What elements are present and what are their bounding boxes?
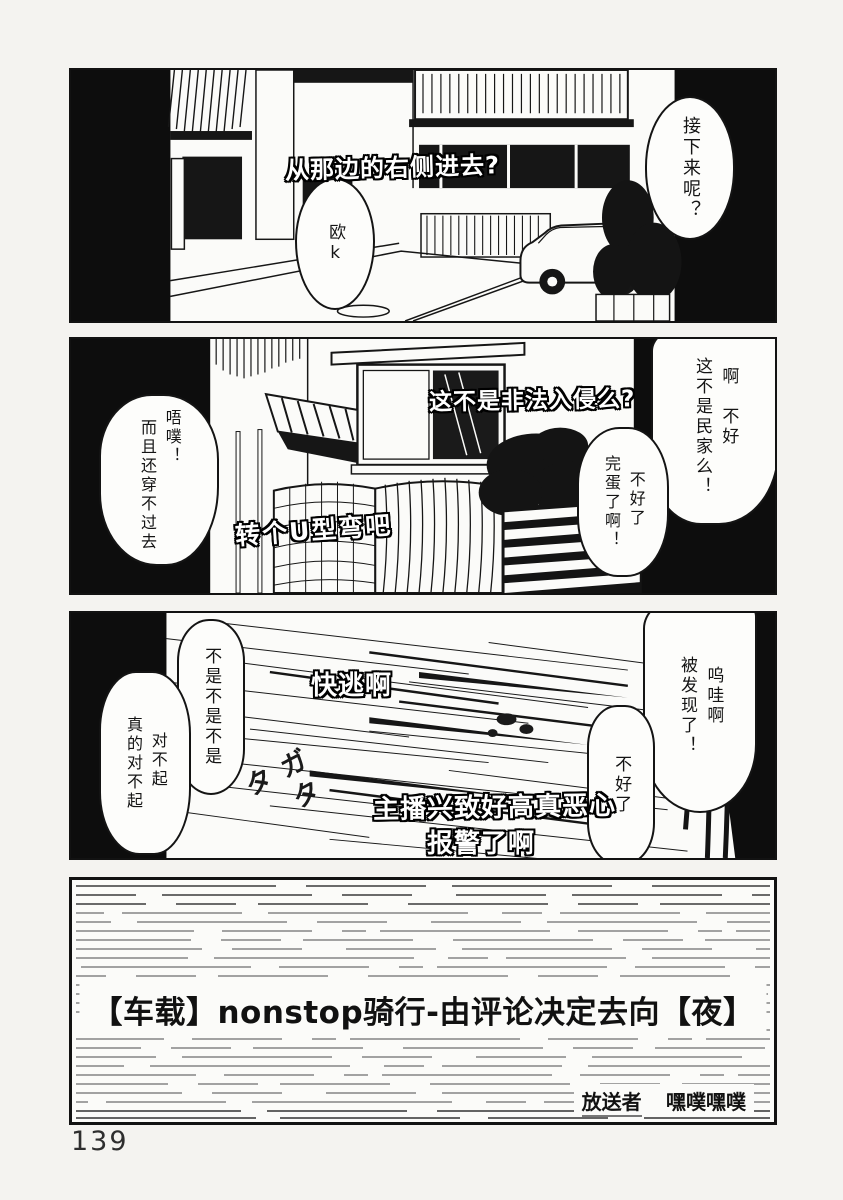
manga-page: 从那边的右侧进去? 欧k 接下来呢？: [0, 0, 843, 1200]
bubble-text: 不好了 完蛋了啊！: [598, 455, 648, 550]
caption-enter-from-right: 从那边的右侧进去?: [285, 145, 501, 186]
broadcaster-name: 嘿噗嘿噗: [666, 1090, 746, 1114]
speech-bubble-sorry: 对不起 真的对不起: [99, 671, 191, 855]
bubble-line: 不是不是不是: [198, 647, 224, 767]
bubble-line: 对不起: [145, 732, 170, 811]
caption-run: 快逃啊: [311, 665, 392, 702]
bubble-text: 接下来呢？: [676, 116, 704, 221]
speech-bubble-ok: 欧k: [295, 178, 375, 310]
broadcaster-credit: 放送者 嘿噗嘿噗: [574, 1084, 754, 1117]
speech-bubble-uh-oh: 不好了: [587, 705, 655, 860]
bubble-line: 而且还穿不过去: [134, 419, 159, 552]
page-number: 139: [71, 1126, 129, 1157]
bubble-text: 欧k: [322, 223, 348, 266]
bubble-text: 对不起 真的对不起: [120, 716, 170, 811]
caption-police-called: 报警了啊: [427, 823, 535, 860]
bubble-line: 啊 不好: [715, 367, 741, 497]
panel-4: 【车载】nonstop骑行-由评论决定去向【夜】 放送者 嘿噗嘿噗: [69, 877, 777, 1125]
bubble-text: 呜哇啊 被发现了！: [674, 656, 727, 756]
caption-streamer-gross: 主播兴致好高真恶心: [373, 785, 617, 826]
panel-3: 快逃啊 主播兴致好高真恶心 报警了啊 ガタタ 不是不是不是 对不起 真的对不起 …: [69, 611, 777, 860]
speech-bubble-private-house: 啊 不好 这不是民家么！: [651, 337, 777, 525]
speech-bubble-whats-next: 接下来呢？: [645, 96, 735, 240]
bubble-line: 被发现了！: [674, 656, 700, 756]
bubble-line: 呜哇啊: [700, 666, 726, 756]
bubble-text: 啊 不好 这不是民家么！: [689, 357, 742, 497]
bubble-text: 唔噗！ 而且还穿不过去: [134, 409, 184, 552]
bubble-text: 不是不是不是: [198, 647, 224, 767]
bubble-line: 欧k: [322, 223, 348, 266]
bubble-line: 不好了: [623, 471, 648, 550]
bubble-line: 完蛋了啊！: [598, 455, 623, 550]
speech-bubble-cant-pass: 唔噗！ 而且还穿不过去: [99, 394, 219, 566]
bubble-line: 真的对不起: [120, 716, 145, 811]
speech-bubble-spotted: 呜哇啊 被发现了！: [643, 611, 757, 813]
broadcaster-label: 放送者: [582, 1090, 642, 1117]
panel-2: 这不是非法入侵么? 转个U型弯吧 唔噗！ 而且还穿不过去 啊 不好 这不是民家么…: [69, 337, 777, 595]
stream-title: 【车载】nonstop骑行-由评论决定去向【夜】: [79, 982, 766, 1037]
caption-trespassing: 这不是非法入侵么?: [429, 379, 636, 417]
bubble-line: 唔噗！: [159, 409, 184, 552]
bubble-line: 接下来呢？: [676, 116, 704, 221]
bubble-line: 这不是民家么！: [689, 357, 715, 497]
speech-bubble-doomed: 不好了 完蛋了啊！: [577, 427, 669, 577]
panel-1: 从那边的右侧进去? 欧k 接下来呢？: [69, 68, 777, 323]
